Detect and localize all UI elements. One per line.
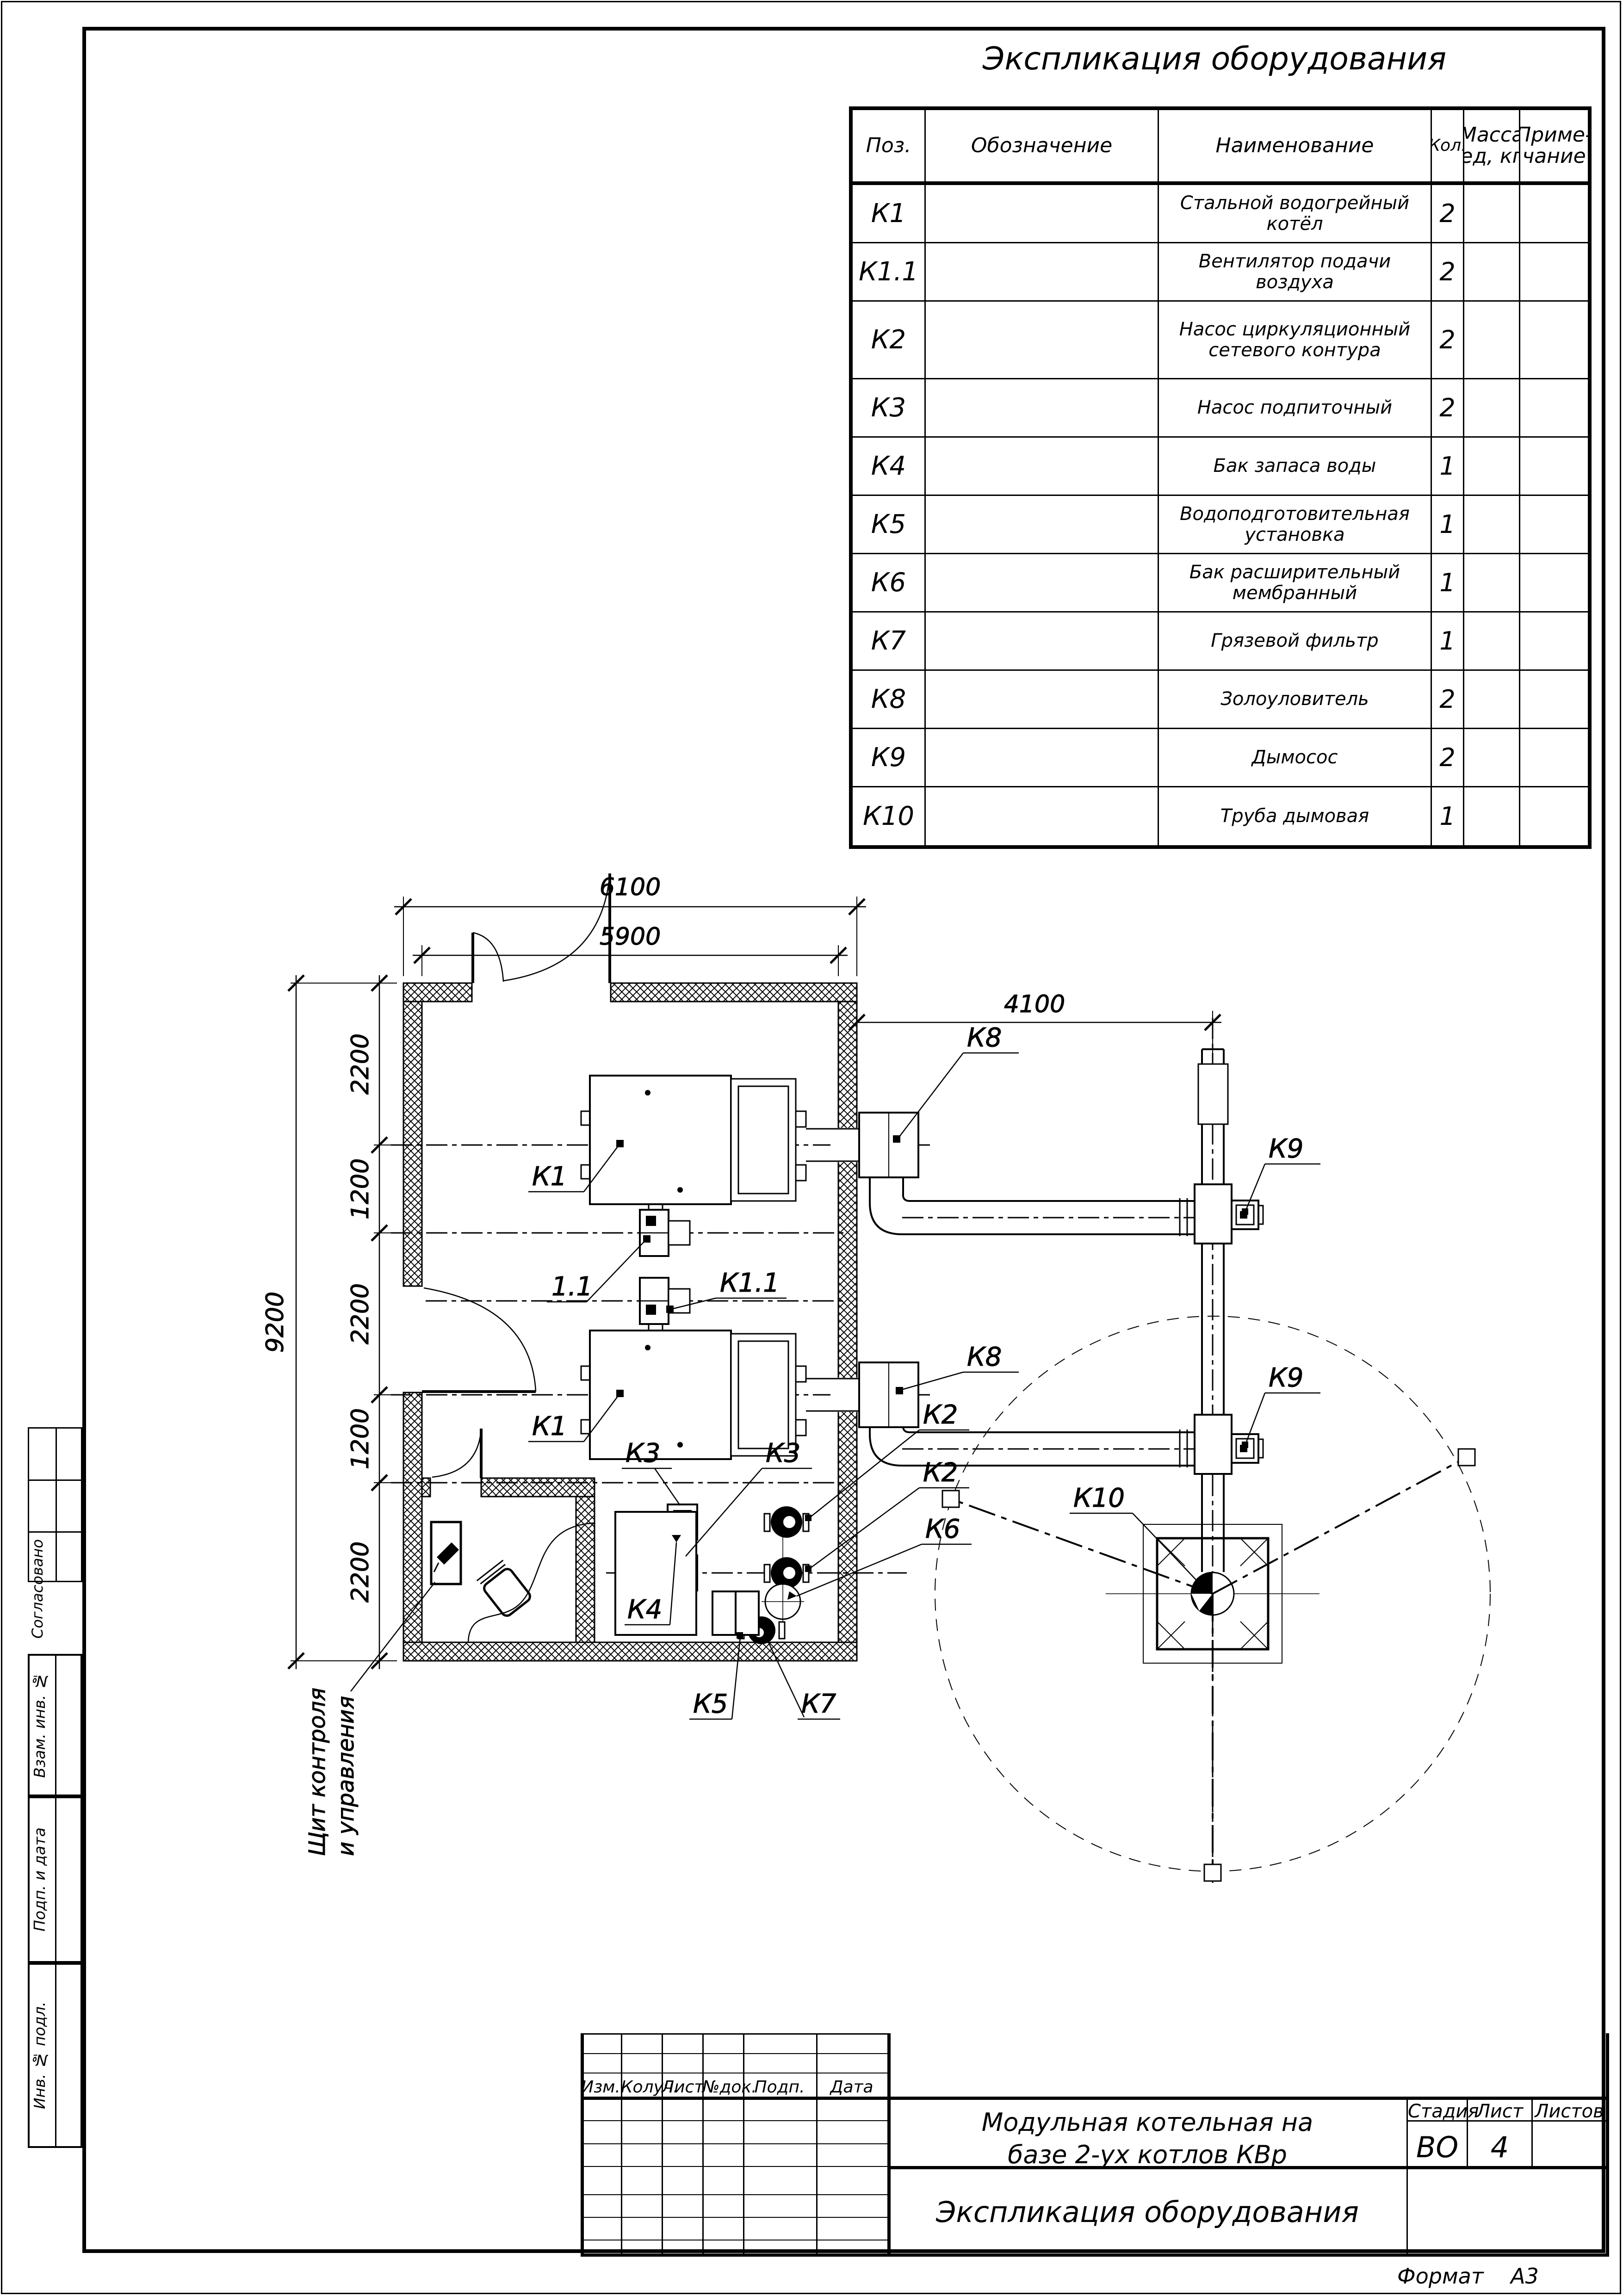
- label-k2-bottom: К2: [923, 1458, 958, 1488]
- rev-col-data: Дата: [816, 2078, 887, 2097]
- flue-sleeve2: [830, 1378, 863, 1412]
- sheets-label: Листов: [1533, 2101, 1606, 2122]
- label-k10: К10: [1073, 1483, 1125, 1513]
- door-top-arc: [503, 873, 610, 981]
- wall-left-upper: [403, 1002, 422, 1286]
- label-control-panel: Щит контроля и управления: [304, 1688, 359, 1856]
- vzam-box: Взам. инв. №: [28, 1654, 82, 1796]
- sheet-value: 4: [1468, 2130, 1531, 2164]
- control-panel-line2: и управления: [333, 1696, 359, 1856]
- label-k8-bottom: К8: [967, 1342, 1002, 1372]
- door-interior-arc: [432, 1429, 481, 1477]
- doc-title-line2: базе 2-ух котлов КВр: [1008, 2140, 1287, 2169]
- label-k7: К7: [801, 1689, 836, 1719]
- agreed-label: Согласовано: [29, 1524, 70, 1654]
- drawing-sheet: Экспликация оборудования Поз. Обозначени…: [0, 0, 1623, 2296]
- ash-collector2: [859, 1362, 1202, 1467]
- label-k3-left: К3: [626, 1438, 660, 1468]
- dim-5900: 5900: [600, 923, 661, 951]
- doc-title: Модульная котельная на базе 2-ух котлов …: [895, 2106, 1400, 2171]
- podp-label: Подп. и дата: [31, 1798, 55, 1961]
- fan1-symbol: [640, 1204, 690, 1256]
- dim-seg2: 1200: [347, 1158, 374, 1219]
- centerlines: [391, 1018, 1213, 1883]
- guy-wires: [951, 1457, 1467, 1873]
- dim-4100: 4100: [1004, 990, 1065, 1018]
- rev-col-koluch: Колуч.: [621, 2078, 662, 2097]
- plan-drawing: 6100 5900 4100 9200 2200 1200 2200 1200 …: [0, 0, 1623, 2296]
- sheet-title: Экспликация оборудования: [895, 2195, 1400, 2229]
- wall-left-lower: [403, 1392, 422, 1642]
- rev-col-dok: №док.: [702, 2078, 743, 2097]
- label-k5: К5: [693, 1689, 728, 1719]
- wall-interior-vertical: [576, 1497, 595, 1642]
- label-k1-bottom: К1: [532, 1411, 567, 1442]
- format-value: А3: [1511, 2264, 1539, 2289]
- vzam-label: Взам. инв. №: [31, 1656, 55, 1795]
- doc-title-line1: Модульная котельная на: [982, 2108, 1313, 2137]
- label-k9-top: К9: [1269, 1134, 1303, 1164]
- podp-box: Подп. и дата: [28, 1796, 82, 1963]
- label-k3-right: К3: [766, 1438, 800, 1468]
- k5-unit-symbol: [712, 1591, 759, 1635]
- sheet-label: Лист: [1468, 2101, 1531, 2122]
- wall-top-right-segment: [611, 983, 857, 1002]
- dim-seg1: 2200: [347, 1034, 374, 1095]
- door-left-arc: [424, 1288, 536, 1392]
- label-k6: К6: [925, 1514, 960, 1544]
- dim-seg4: 1200: [347, 1408, 374, 1469]
- label-k11: К1.1: [720, 1268, 780, 1298]
- format-label: Формат: [1397, 2264, 1484, 2289]
- guy-anchors: [942, 1449, 1475, 1881]
- door-top-arc-small: [473, 933, 503, 982]
- wall-interior-stub: [422, 1478, 430, 1497]
- label-k1-top: К1: [532, 1162, 567, 1192]
- flue-sleeve1: [830, 1128, 863, 1162]
- stage-label: Стадия: [1408, 2101, 1467, 2122]
- stage-value: ВО: [1408, 2130, 1467, 2164]
- inv-label: Инв. № подл.: [31, 1965, 55, 2146]
- fan2-symbol: [640, 1278, 690, 1331]
- label-fan-tag: 1.1: [551, 1272, 593, 1302]
- control-panel-symbol: [431, 1522, 461, 1584]
- dim-6100: 6100: [600, 873, 661, 901]
- rev-col-podp: Подп.: [743, 2078, 816, 2097]
- rev-col-list: Лист: [662, 2078, 702, 2097]
- dim-seg3: 2200: [347, 1283, 374, 1344]
- label-k9-bottom: К9: [1269, 1363, 1303, 1393]
- wall-interior-horizontal: [481, 1478, 595, 1497]
- k2-pump1-symbol: [764, 1506, 809, 1538]
- wall-bottom: [403, 1642, 857, 1661]
- inv-box: Инв. № подл.: [28, 1963, 82, 2148]
- control-panel-line1: Щит контроля: [304, 1688, 330, 1856]
- wall-right: [838, 1002, 857, 1642]
- dim-seg5: 2200: [347, 1541, 374, 1603]
- dim-9200: 9200: [261, 1292, 289, 1353]
- rev-col-izm: Изм.: [581, 2078, 621, 2097]
- format-note: Формат А3: [1397, 2264, 1601, 2289]
- label-k2-top: К2: [923, 1400, 958, 1430]
- label-k4: К4: [627, 1595, 662, 1625]
- wall-top-left-segment: [403, 983, 472, 1002]
- title-block: Изм. Колуч. Лист №док. Подп. Дата Модуль…: [581, 2033, 1609, 2257]
- label-k8-top: К8: [967, 1023, 1002, 1053]
